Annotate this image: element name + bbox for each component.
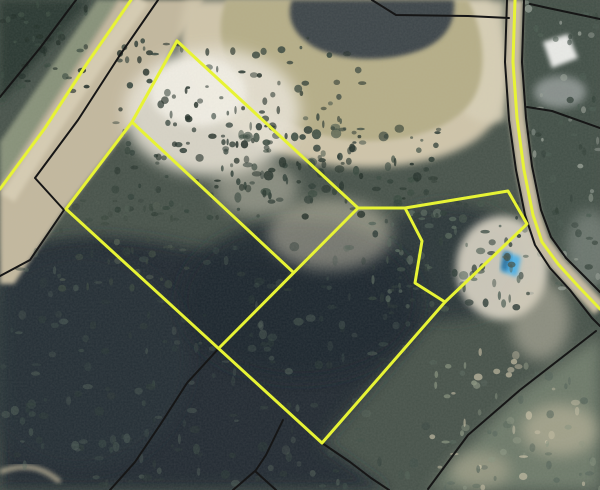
terrain-layer — [0, 0, 600, 490]
map-canvas[interactable] — [0, 0, 600, 490]
imagery-grain — [0, 0, 600, 490]
map-frame — [0, 0, 600, 490]
